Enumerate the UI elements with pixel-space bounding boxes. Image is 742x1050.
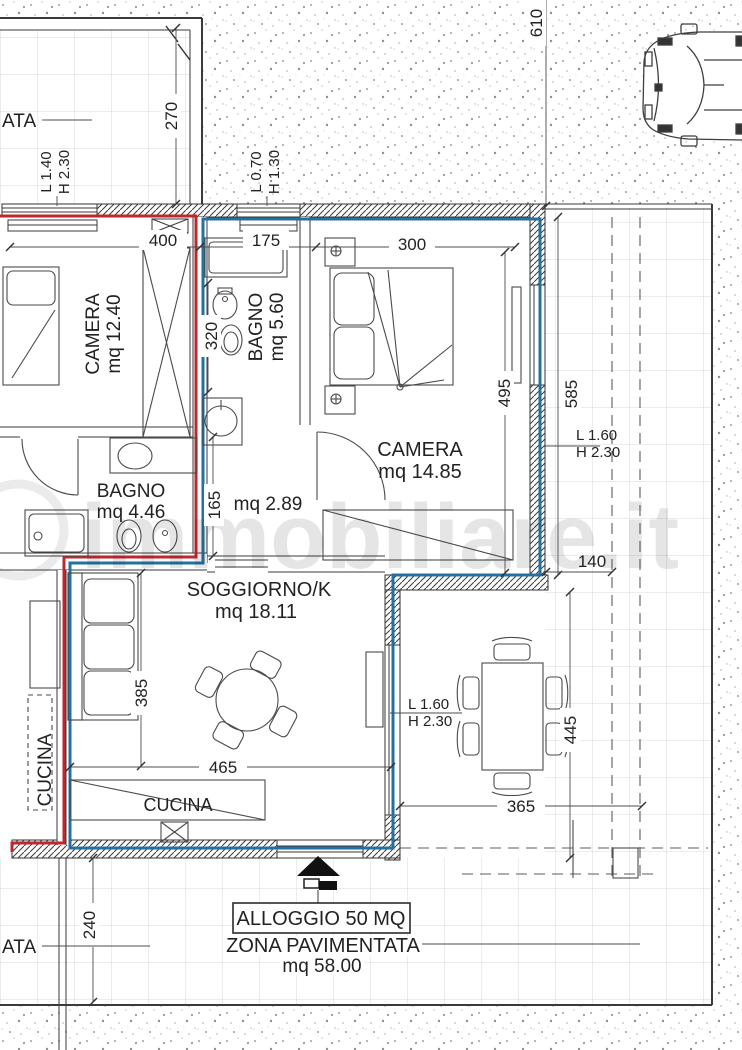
svg-text:L 0.70: L 0.70 bbox=[248, 151, 265, 192]
bed-double bbox=[330, 268, 453, 390]
zona-bottom-partial: ATA bbox=[2, 937, 36, 958]
nightstand-top bbox=[325, 238, 355, 266]
svg-text:mq 18.11: mq 18.11 bbox=[215, 601, 297, 623]
room-label-bagno2: BAGNO mq 4.46 bbox=[97, 481, 166, 523]
svg-text:CAMERA: CAMERA bbox=[377, 439, 463, 461]
kitchen-sink-box bbox=[161, 822, 188, 842]
svg-text:mq 12.40: mq 12.40 bbox=[104, 294, 125, 373]
dim-320: 320 bbox=[202, 322, 221, 350]
svg-text:H 2.30: H 2.30 bbox=[576, 444, 620, 461]
svg-text:L 1.40: L 1.40 bbox=[38, 151, 55, 192]
alloggio-box: ALLOGGIO 50 MQ bbox=[233, 903, 410, 933]
svg-text:mq 14.85: mq 14.85 bbox=[378, 461, 461, 483]
window-label-w2: L 0.70 H 1.30 bbox=[248, 150, 283, 194]
svg-text:L 1.60: L 1.60 bbox=[408, 696, 449, 713]
zona-pavimentata-mq: mq 58.00 bbox=[282, 956, 361, 977]
floor-plan: immobiliare.it 610 270 400 175 300 495 5… bbox=[0, 0, 742, 1050]
sink-bagno1 bbox=[203, 398, 242, 445]
dim-175: 175 bbox=[252, 231, 280, 250]
window-label-w1: L 1.40 H 2.30 bbox=[38, 150, 73, 194]
svg-text:mq 5.60: mq 5.60 bbox=[267, 293, 288, 362]
bidet-bagno1 bbox=[213, 288, 237, 319]
svg-text:H 2.30: H 2.30 bbox=[408, 713, 452, 730]
svg-text:L 1.60: L 1.60 bbox=[576, 427, 617, 444]
room-label-bagno1: BAGNO mq 5.60 bbox=[246, 293, 288, 362]
dim-465: 465 bbox=[209, 758, 237, 777]
dim-610: 610 bbox=[527, 9, 546, 37]
wc-bagno1 bbox=[220, 325, 242, 355]
bed-single bbox=[3, 267, 59, 385]
wardrobe-camera1 bbox=[143, 248, 190, 437]
svg-text:BAGNO: BAGNO bbox=[246, 293, 267, 362]
dim-445: 445 bbox=[561, 716, 580, 744]
car-icon bbox=[643, 24, 742, 146]
dim-495: 495 bbox=[495, 379, 514, 407]
sofa bbox=[68, 573, 138, 720]
svg-text:immobiliare.it: immobiliare.it bbox=[81, 486, 679, 588]
room-label-camera1: CAMERA mq 12.40 bbox=[83, 293, 125, 375]
dim-165: 165 bbox=[205, 491, 224, 519]
dim-240: 240 bbox=[80, 911, 99, 939]
dim-365: 365 bbox=[507, 797, 535, 816]
window-w4 bbox=[366, 645, 400, 815]
svg-text:H 2.30: H 2.30 bbox=[56, 150, 73, 194]
zona-top-partial: ATA bbox=[2, 111, 36, 132]
dim-300: 300 bbox=[398, 235, 426, 254]
zona-pavimentata-label: ZONA PAVIMENTATA bbox=[226, 935, 420, 957]
dim-400: 400 bbox=[149, 231, 177, 250]
room-label-cucina-adjacent: CUCINA bbox=[35, 733, 56, 806]
svg-text:CAMERA: CAMERA bbox=[83, 293, 104, 375]
alloggio-label: ALLOGGIO 50 MQ bbox=[237, 908, 406, 930]
dim-270: 270 bbox=[162, 102, 181, 130]
dim-585: 585 bbox=[562, 380, 581, 408]
svg-text:mq 4.46: mq 4.46 bbox=[97, 502, 166, 523]
nightstand-bottom bbox=[325, 386, 355, 414]
window-label-w4: L 1.60 H 2.30 bbox=[390, 696, 462, 730]
svg-text:H 1.30: H 1.30 bbox=[266, 150, 283, 194]
dim-385: 385 bbox=[132, 679, 151, 707]
svg-text:BAGNO: BAGNO bbox=[97, 481, 166, 502]
room-label-cucina-counter: CUCINA bbox=[143, 795, 212, 815]
room-label-soggiorno: SOGGIORNO/K mq 18.11 bbox=[187, 579, 332, 623]
room-label-disimpegno: mq 2.89 bbox=[234, 494, 303, 515]
room-label-camera2: CAMERA mq 14.85 bbox=[377, 439, 463, 483]
dim-140: 140 bbox=[578, 552, 606, 571]
vanity-bagno2 bbox=[110, 438, 197, 473]
dining-table-round bbox=[178, 631, 317, 768]
svg-text:SOGGIORNO/K: SOGGIORNO/K bbox=[187, 579, 332, 601]
